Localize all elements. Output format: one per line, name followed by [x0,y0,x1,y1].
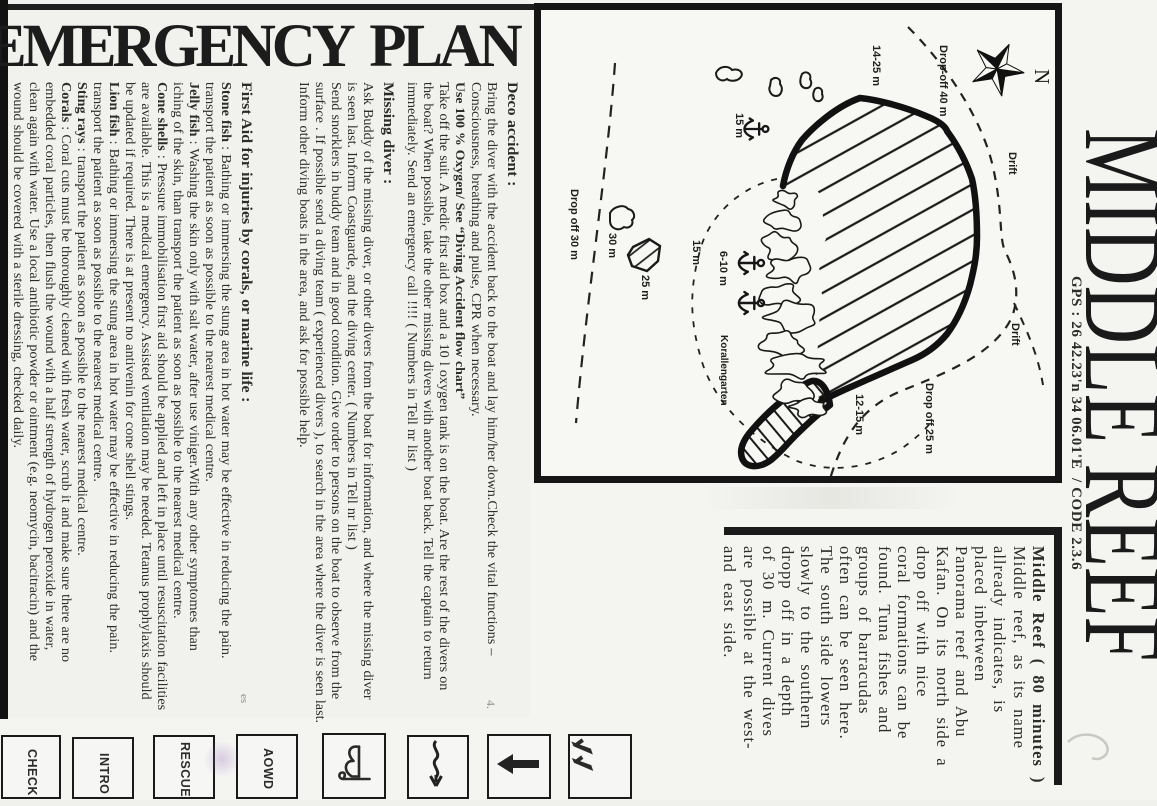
svg-text:12-15 m: 12-15 m [853,394,865,435]
svg-text:30 m: 30 m [606,233,618,258]
svg-text:Drop off 25 m: Drop off 25 m [923,383,935,454]
svg-text:Drift: Drift [1006,152,1018,175]
svg-text:Korallengarten: Korallengarten [718,335,729,406]
svg-text:15 m: 15 m [690,240,702,265]
svg-text:Drop-off 40 m: Drop-off 40 m [937,45,949,117]
svg-text:Drop off 30 m: Drop off 30 m [568,189,580,260]
svg-text:14-25 m: 14-25 m [870,45,882,86]
svg-text:6-10 m: 6-10 m [717,251,729,286]
svg-text:Drift: Drift [1009,323,1021,346]
svg-text:N: N [1030,69,1054,84]
svg-text:15 m: 15 m [733,113,745,138]
svg-text:25 m: 25 m [639,275,651,300]
